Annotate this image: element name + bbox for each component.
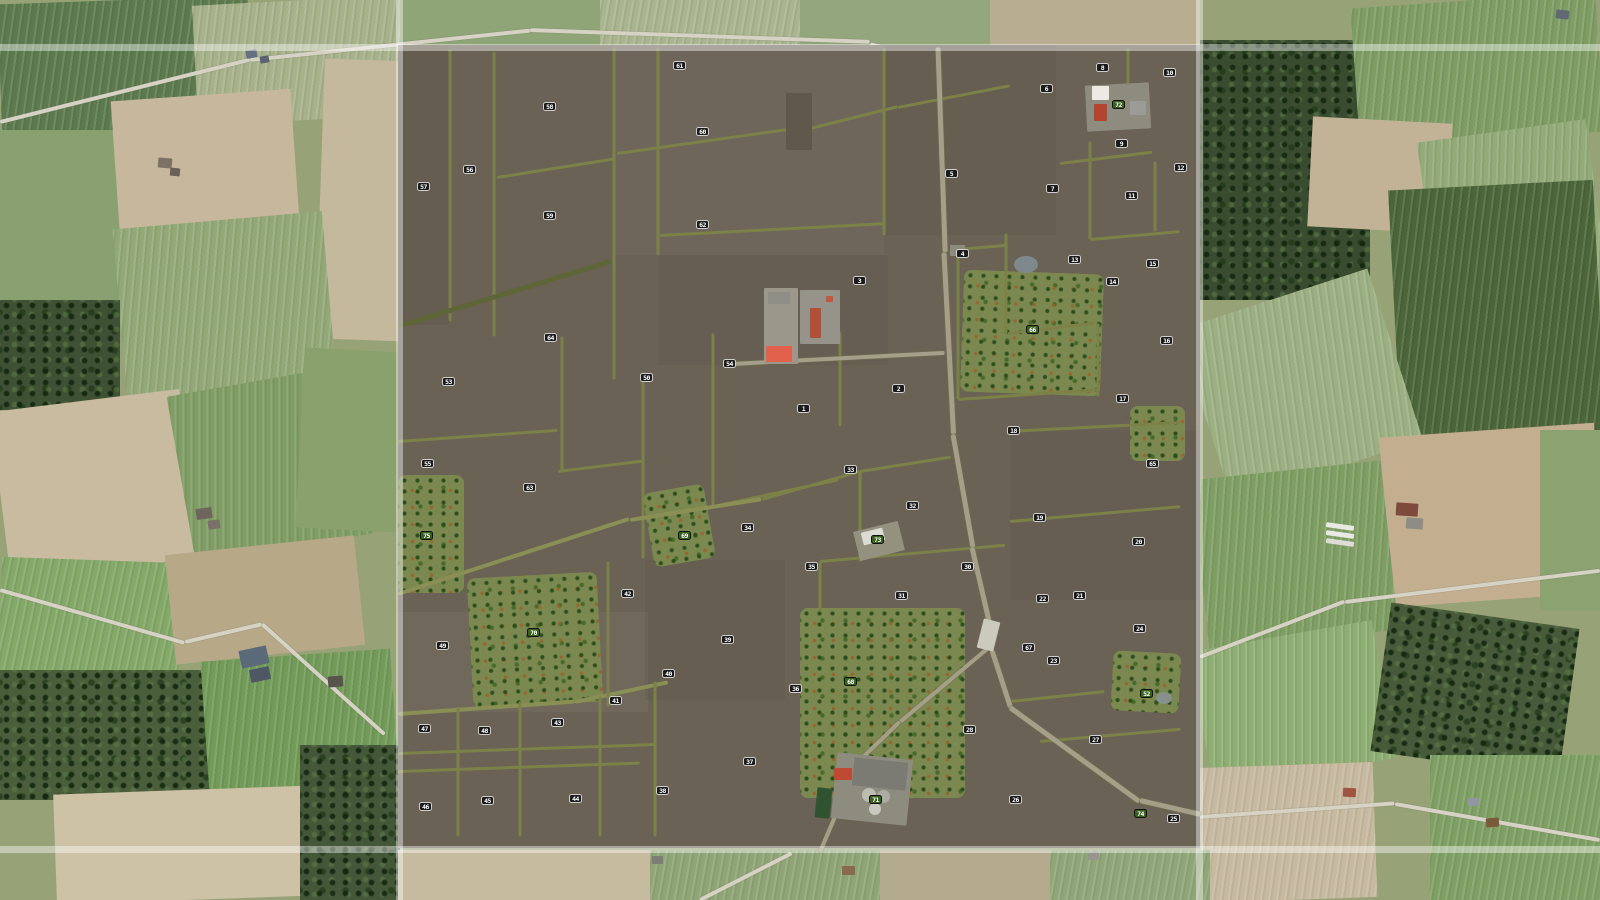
field-boundary <box>1154 162 1157 232</box>
meadow-patch <box>642 483 716 568</box>
satellite-field-patch <box>0 130 130 310</box>
building-green <box>814 787 832 818</box>
field-number-badge[interactable]: 37 <box>743 757 756 766</box>
forest-patch <box>0 670 210 800</box>
satellite-field-patch <box>1540 430 1600 610</box>
tank <box>869 803 881 815</box>
field-number-badge[interactable]: 3 <box>853 276 866 285</box>
field-number-badge[interactable]: 26 <box>1009 795 1022 804</box>
field-number-badge[interactable]: 46 <box>419 802 432 811</box>
building-red <box>1343 788 1356 798</box>
satellite-field-patch <box>880 850 1060 900</box>
field-number-badge[interactable]: 15 <box>1146 259 1159 268</box>
field-number-badge[interactable]: 11 <box>1125 191 1138 200</box>
field-number-badge[interactable]: 4 <box>956 249 969 258</box>
field-number-badge[interactable]: 39 <box>721 635 734 644</box>
satellite-field-patch <box>650 850 890 900</box>
field-number-badge[interactable]: 48 <box>478 726 491 735</box>
forest-patch <box>1370 603 1579 778</box>
satellite-field-patch <box>990 0 1200 45</box>
field-number-badge[interactable]: 53 <box>442 377 455 386</box>
building <box>768 292 790 304</box>
building-white <box>1092 86 1109 100</box>
field-boundary <box>819 562 822 612</box>
field-boundary <box>1005 234 1008 334</box>
field-boundary <box>657 48 660 256</box>
satellite-map-view: 1234567891011121314151617181920212223242… <box>0 0 1600 900</box>
field-number-badge[interactable]: 12 <box>1174 163 1187 172</box>
field-number-badge[interactable]: 17 <box>1116 394 1129 403</box>
field-number-badge[interactable]: 31 <box>895 591 908 600</box>
field-number-badge[interactable]: 42 <box>621 589 634 598</box>
field-boundary <box>712 334 715 506</box>
field-number-badge[interactable]: 5 <box>945 169 958 178</box>
field-number-badge[interactable]: 52 <box>1140 689 1153 698</box>
field-number-badge[interactable]: 7 <box>1046 184 1059 193</box>
pond <box>1014 256 1038 273</box>
building <box>207 519 220 530</box>
field-number-badge[interactable]: 36 <box>789 684 802 693</box>
field-number-badge[interactable]: 30 <box>961 562 974 571</box>
building-red <box>826 296 833 302</box>
field-boundary <box>519 702 522 837</box>
field-number-badge[interactable]: 63 <box>523 483 536 492</box>
field-number-badge[interactable]: 25 <box>1167 814 1180 823</box>
field-number-badge[interactable]: 47 <box>418 724 431 733</box>
field-number-badge[interactable]: 35 <box>805 562 818 571</box>
field-number-badge[interactable]: 55 <box>421 459 434 468</box>
building <box>1468 798 1480 807</box>
satellite-field-patch <box>1430 755 1600 900</box>
building <box>1556 9 1570 19</box>
field-number-badge[interactable]: 21 <box>1073 591 1086 600</box>
field-number-badge[interactable]: 40 <box>662 669 675 678</box>
field-boundary <box>957 250 960 400</box>
field-number-badge[interactable]: 57 <box>417 182 430 191</box>
field-number-badge[interactable]: 71 <box>869 795 882 804</box>
field-number-badge[interactable]: 22 <box>1036 594 1049 603</box>
meadow-patch <box>1130 406 1185 461</box>
field-number-badge[interactable]: 13 <box>1068 255 1081 264</box>
field-number-badge[interactable]: 41 <box>609 696 622 705</box>
satellite-field-patch <box>295 348 404 533</box>
field-number-badge[interactable]: 10 <box>1163 68 1176 77</box>
field-number-badge[interactable]: 18 <box>1007 426 1020 435</box>
satellite-field-patch <box>53 785 317 900</box>
field-number-badge[interactable]: 56 <box>463 165 476 174</box>
field-number-badge[interactable]: 34 <box>741 523 754 532</box>
satellite-field-patch <box>1198 762 1378 900</box>
building-red <box>810 308 821 338</box>
field-boundary <box>599 697 602 837</box>
satellite-field-patch <box>398 850 658 900</box>
field-number-badge[interactable]: 24 <box>1133 624 1146 633</box>
building <box>652 856 663 864</box>
field-boundary <box>1097 324 1100 397</box>
field-notch <box>786 93 812 150</box>
field-number-badge[interactable]: 45 <box>481 796 494 805</box>
field-number-badge[interactable]: 27 <box>1089 735 1102 744</box>
satellite-field-patch <box>1050 850 1210 900</box>
building-red <box>766 346 792 362</box>
field-number-badge[interactable]: 59 <box>543 211 556 220</box>
field-number-badge[interactable]: 58 <box>543 102 556 111</box>
field-number-badge[interactable]: 23 <box>1047 656 1060 665</box>
field-number-badge[interactable]: 64 <box>544 333 557 342</box>
field-boundary <box>457 707 460 837</box>
building <box>195 507 212 520</box>
field-number-badge[interactable]: 14 <box>1106 277 1119 286</box>
building-red <box>834 768 852 780</box>
silo-red <box>1094 104 1107 121</box>
field-number-badge[interactable]: 75 <box>420 531 433 540</box>
field-number-badge[interactable]: 38 <box>656 786 669 795</box>
meadow-patch <box>1110 650 1181 713</box>
field-number-badge[interactable]: 73 <box>871 535 884 544</box>
field-number-badge[interactable]: 49 <box>436 641 449 650</box>
field-boundary <box>839 332 842 427</box>
satellite-field-patch <box>111 89 300 231</box>
field-number-badge[interactable]: 70 <box>527 628 540 637</box>
building <box>1088 852 1099 860</box>
field-boundary <box>642 374 645 559</box>
field-number-badge[interactable]: 1 <box>797 404 810 413</box>
field-number-badge[interactable]: 68 <box>844 677 857 686</box>
field-number-badge[interactable]: 72 <box>1112 100 1125 109</box>
building <box>842 866 855 875</box>
field-boundary <box>883 48 886 236</box>
field-number-badge[interactable]: 33 <box>844 465 857 474</box>
field-number-badge[interactable]: 20 <box>1132 537 1145 546</box>
field-number-badge[interactable]: 69 <box>678 531 691 540</box>
field-boundary <box>561 337 564 472</box>
field-boundary <box>1089 142 1092 240</box>
pond <box>1156 692 1172 704</box>
field-number-badge[interactable]: 44 <box>569 794 582 803</box>
field-number-badge[interactable]: 32 <box>906 501 919 510</box>
building <box>170 168 181 177</box>
field-number-badge[interactable]: 66 <box>1026 325 1039 334</box>
field-number-badge[interactable]: 43 <box>551 718 564 727</box>
building-red <box>1396 502 1419 517</box>
building <box>852 757 909 790</box>
field-boundary <box>613 48 616 380</box>
field-boundary <box>654 682 657 837</box>
forest-patch <box>0 300 120 410</box>
field-number-badge[interactable]: 19 <box>1033 513 1046 522</box>
field-number-badge[interactable]: 9 <box>1115 139 1128 148</box>
field-number-badge[interactable]: 60 <box>696 127 709 136</box>
building <box>328 675 344 687</box>
meadow-patch <box>467 572 604 709</box>
field-boundary <box>607 562 610 707</box>
satellite-field-patch <box>1388 180 1600 460</box>
field-number-badge[interactable]: 61 <box>673 61 686 70</box>
building <box>1486 817 1500 827</box>
field-number-badge[interactable]: 2 <box>892 384 905 393</box>
field-boundary <box>449 50 452 322</box>
field-number-badge[interactable]: 74 <box>1134 809 1147 818</box>
field-number-badge[interactable]: 8 <box>1096 63 1109 72</box>
field-number-badge[interactable]: 6 <box>1040 84 1053 93</box>
field-number-badge[interactable]: 67 <box>1022 643 1035 652</box>
field-number-badge[interactable]: 62 <box>696 220 709 229</box>
forest-patch <box>300 745 400 900</box>
satellite-field-patch <box>0 557 182 683</box>
field-number-badge[interactable]: 54 <box>723 359 736 368</box>
field-number-badge[interactable]: 65 <box>1146 459 1159 468</box>
field-number-badge[interactable]: 28 <box>963 725 976 734</box>
field-number-badge[interactable]: 16 <box>1160 336 1173 345</box>
building <box>1406 517 1424 529</box>
building <box>1130 101 1146 115</box>
field-number-badge[interactable]: 50 <box>640 373 653 382</box>
